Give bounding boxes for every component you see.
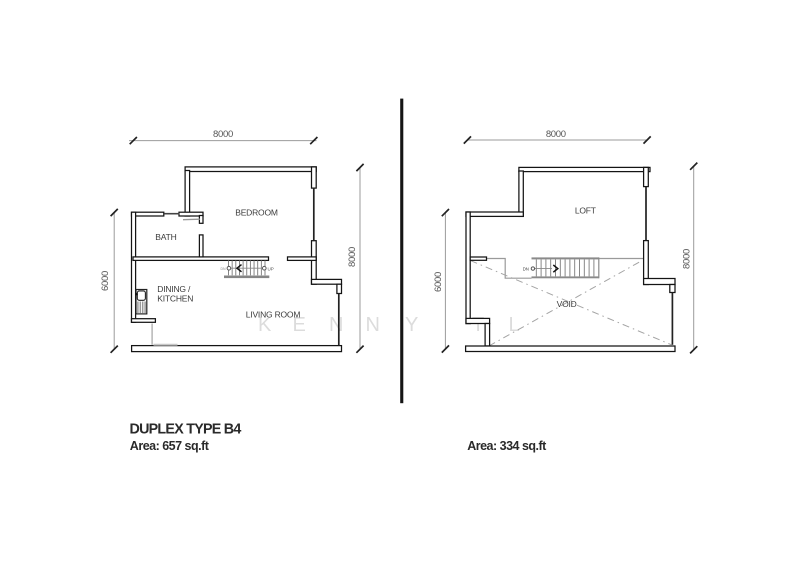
svg-text:N: N: [366, 314, 380, 336]
svg-text:L: L: [509, 314, 520, 336]
svg-text:DN: DN: [523, 266, 529, 271]
svg-text:6000: 6000: [433, 272, 444, 292]
svg-text:N: N: [329, 314, 343, 336]
svg-text:T: T: [472, 314, 484, 336]
svg-text:Area: 657 sq.ft: Area: 657 sq.ft: [130, 439, 210, 453]
svg-text:LIVING ROOM: LIVING ROOM: [246, 310, 301, 320]
svg-text:8000: 8000: [681, 249, 692, 269]
svg-text:6000: 6000: [100, 271, 111, 291]
svg-text:8000: 8000: [347, 247, 358, 267]
svg-text:KITCHEN: KITCHEN: [157, 293, 193, 303]
svg-text:LOFT: LOFT: [575, 206, 596, 216]
svg-text:BATH: BATH: [155, 232, 176, 242]
svg-text:8000: 8000: [213, 129, 233, 140]
svg-text:Y: Y: [405, 314, 418, 336]
svg-text:DN: DN: [221, 267, 227, 271]
svg-text:DUPLEX TYPE B4: DUPLEX TYPE B4: [130, 421, 242, 437]
svg-text:UP: UP: [268, 266, 274, 271]
svg-text:BEDROOM: BEDROOM: [235, 208, 278, 218]
svg-text:VOID: VOID: [557, 299, 577, 309]
svg-text:Area: 334 sq.ft: Area: 334 sq.ft: [467, 439, 547, 453]
svg-text:8000: 8000: [546, 129, 566, 140]
